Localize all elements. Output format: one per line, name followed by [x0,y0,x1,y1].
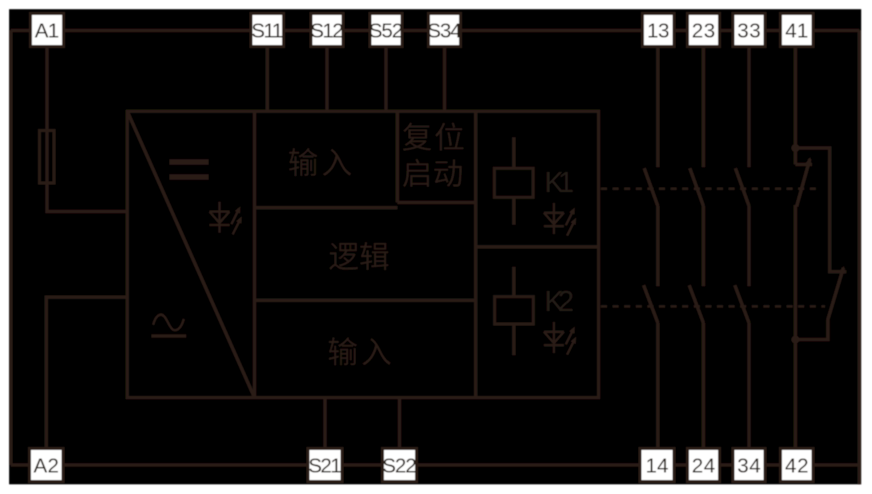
svg-text:13: 13 [647,19,670,42]
svg-text:S12: S12 [310,19,344,42]
svg-text:S52: S52 [369,19,404,42]
svg-text:K1: K1 [545,167,575,199]
svg-text:41: 41 [785,19,808,42]
svg-text:A2: A2 [33,455,59,478]
svg-text:A1: A1 [35,19,60,42]
svg-text:S21: S21 [308,455,342,478]
svg-text:14: 14 [646,455,669,478]
svg-text:S11: S11 [251,19,283,42]
svg-text:24: 24 [692,455,716,478]
svg-text:K2: K2 [545,286,575,318]
svg-text:34: 34 [737,455,761,478]
svg-text:33: 33 [737,19,761,42]
svg-text:S34: S34 [427,19,462,42]
svg-text:23: 23 [692,19,716,42]
svg-text:S22: S22 [382,455,417,478]
svg-text:42: 42 [785,455,809,478]
